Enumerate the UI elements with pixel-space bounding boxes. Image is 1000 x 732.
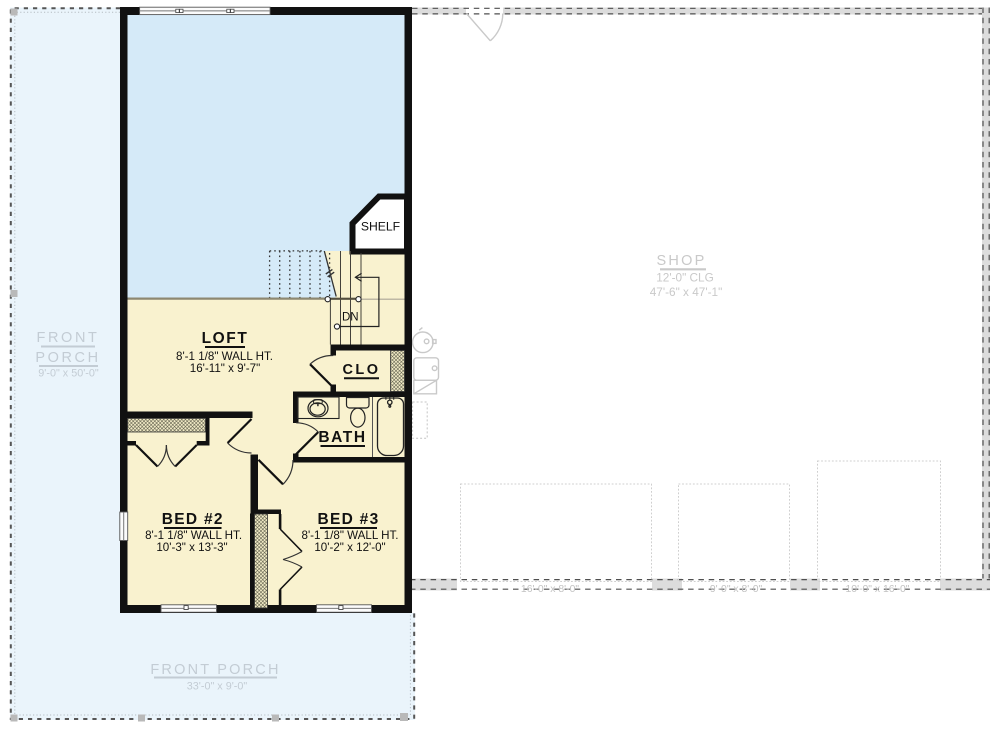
svg-text:FRONT: FRONT — [37, 330, 100, 346]
svg-text:33'-0" x 9'-0": 33'-0" x 9'-0" — [187, 681, 248, 693]
svg-text:16'-0" x 8'-0": 16'-0" x 8'-0" — [521, 584, 579, 595]
svg-text:10'-0" x 16'-0": 10'-0" x 16'-0" — [846, 584, 910, 595]
svg-text:16'-11" x 9'-7": 16'-11" x 9'-7" — [190, 362, 260, 375]
svg-text:SHELF: SHELF — [361, 220, 400, 234]
svg-text:CLO: CLO — [342, 362, 380, 378]
svg-text:PORCH: PORCH — [35, 350, 100, 366]
svg-text:10'-2" x 12'-0": 10'-2" x 12'-0" — [314, 541, 385, 554]
svg-text:9'-0" x 50'-0": 9'-0" x 50'-0" — [38, 368, 99, 380]
svg-text:DN: DN — [342, 311, 359, 323]
svg-text:47'-6" x 47'-1": 47'-6" x 47'-1" — [650, 285, 723, 299]
svg-text:12'-0" CLG: 12'-0" CLG — [656, 271, 714, 285]
svg-text:FRONT PORCH: FRONT PORCH — [150, 662, 280, 678]
svg-text:9'-0" x 8'-0": 9'-0" x 8'-0" — [710, 584, 763, 595]
svg-text:10'-3" x 13'-3": 10'-3" x 13'-3" — [156, 541, 227, 554]
svg-text:SHOP: SHOP — [657, 253, 707, 269]
svg-text:BED #3: BED #3 — [317, 511, 379, 528]
svg-text:BATH: BATH — [318, 429, 366, 446]
svg-text:LOFT: LOFT — [202, 330, 249, 347]
svg-text:BED #2: BED #2 — [162, 511, 224, 528]
